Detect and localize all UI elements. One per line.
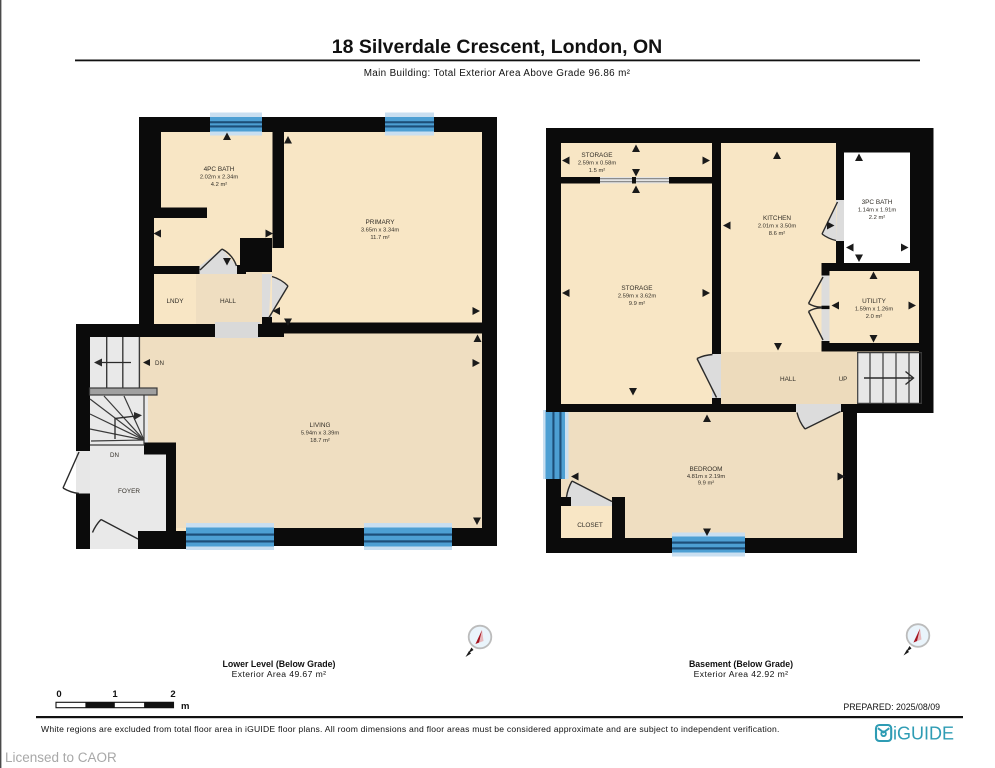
svg-text:9.9 m²: 9.9 m² <box>698 481 714 487</box>
svg-text:1.5 m²: 1.5 m² <box>589 168 605 174</box>
svg-text:Basement (Below Grade): Basement (Below Grade) <box>689 659 793 669</box>
svg-text:3.65m x 3.34m: 3.65m x 3.34m <box>361 228 400 234</box>
svg-text:8.6 m²: 8.6 m² <box>769 231 785 237</box>
svg-text:4.2 m²: 4.2 m² <box>211 182 227 188</box>
svg-text:2.2 m²: 2.2 m² <box>869 215 885 221</box>
svg-text:DN: DN <box>155 360 164 367</box>
svg-text:2.59m x 3.62m: 2.59m x 3.62m <box>618 294 657 300</box>
svg-text:LNDY: LNDY <box>166 298 184 305</box>
svg-text:FOYER: FOYER <box>118 488 140 495</box>
svg-text:iGUIDE: iGUIDE <box>893 724 954 744</box>
svg-text:STORAGE: STORAGE <box>581 152 612 159</box>
svg-text:11.7 m²: 11.7 m² <box>370 235 389 241</box>
svg-text:18 Silverdale Crescent, London: 18 Silverdale Crescent, London, ON <box>332 36 663 58</box>
svg-text:Exterior Area 49.67 m²: Exterior Area 49.67 m² <box>232 669 327 679</box>
svg-text:Main Building: Total Exterior: Main Building: Total Exterior Area Above… <box>364 68 631 79</box>
svg-text:2.02m x 2.34m: 2.02m x 2.34m <box>200 175 239 181</box>
svg-text:1.14m x 1.91m: 1.14m x 1.91m <box>858 208 897 214</box>
svg-text:0: 0 <box>56 689 61 700</box>
svg-text:Lower Level (Below Grade): Lower Level (Below Grade) <box>223 659 336 669</box>
svg-text:4PC BATH: 4PC BATH <box>204 166 235 173</box>
svg-text:Licensed to CAOR: Licensed to CAOR <box>5 750 117 765</box>
svg-text:PREPARED: 2025/08/09: PREPARED: 2025/08/09 <box>843 702 940 712</box>
svg-text:CLOSET: CLOSET <box>577 522 603 529</box>
svg-text:Exterior Area 42.92 m²: Exterior Area 42.92 m² <box>694 669 789 679</box>
svg-text:2: 2 <box>170 689 175 700</box>
svg-text:2.01m x 3.50m: 2.01m x 3.50m <box>758 224 797 230</box>
svg-text:HALL: HALL <box>220 298 236 305</box>
svg-text:2.59m x 0.58m: 2.59m x 0.58m <box>578 161 617 167</box>
svg-text:2.0 m²: 2.0 m² <box>866 314 882 320</box>
svg-text:1.59m x 1.26m: 1.59m x 1.26m <box>855 307 894 313</box>
svg-text:9.9 m²: 9.9 m² <box>629 301 645 307</box>
svg-text:1: 1 <box>112 689 118 700</box>
svg-text:KITCHEN: KITCHEN <box>763 215 791 222</box>
svg-text:3PC BATH: 3PC BATH <box>862 199 893 206</box>
svg-text:DN: DN <box>110 452 119 459</box>
svg-text:BEDROOM: BEDROOM <box>689 466 722 473</box>
svg-text:m: m <box>181 701 189 712</box>
svg-text:STORAGE: STORAGE <box>621 285 652 292</box>
svg-text:HALL: HALL <box>780 376 796 383</box>
svg-text:PRIMARY: PRIMARY <box>365 219 395 226</box>
svg-text:UTILITY: UTILITY <box>862 298 887 305</box>
svg-text:18.7 m²: 18.7 m² <box>310 438 330 444</box>
svg-text:4.81m x 2.19m: 4.81m x 2.19m <box>687 474 726 480</box>
svg-text:5.94m x 3.39m: 5.94m x 3.39m <box>301 431 340 437</box>
svg-text:White regions are excluded fro: White regions are excluded from total fl… <box>41 724 780 734</box>
svg-text:UP: UP <box>839 376 848 383</box>
svg-text:LIVING: LIVING <box>310 422 331 429</box>
